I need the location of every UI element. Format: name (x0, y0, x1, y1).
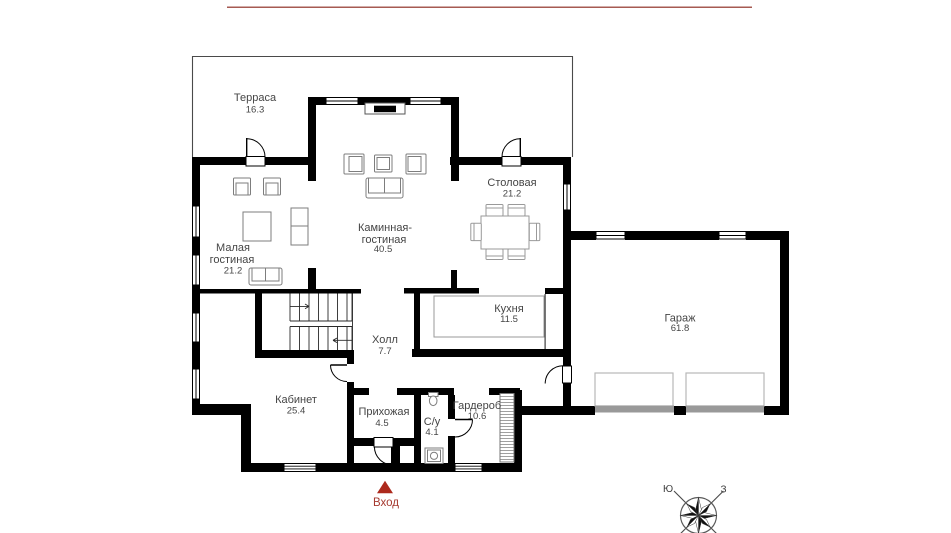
svg-text:21.2: 21.2 (224, 266, 243, 277)
svg-text:Прихожая: Прихожая (359, 406, 410, 418)
svg-text:Каминная-: Каминная- (358, 222, 412, 234)
svg-text:11.5: 11.5 (500, 314, 518, 325)
svg-text:10.6: 10.6 (468, 411, 487, 422)
svg-text:21.2: 21.2 (503, 189, 522, 200)
svg-text:Столовая: Столовая (487, 177, 536, 189)
svg-text:25.4: 25.4 (287, 406, 306, 417)
svg-text:Ю: Ю (663, 484, 673, 495)
svg-text:4.5: 4.5 (375, 418, 388, 429)
svg-text:Терраса: Терраса (234, 92, 277, 104)
svg-text:4.1: 4.1 (425, 427, 438, 438)
svg-text:З: З (720, 485, 726, 496)
svg-text:40.5: 40.5 (374, 244, 393, 255)
svg-text:гостиная: гостиная (210, 254, 255, 266)
svg-text:16.3: 16.3 (246, 105, 265, 116)
svg-text:Холл: Холл (372, 334, 398, 346)
svg-text:Кабинет: Кабинет (275, 394, 317, 406)
svg-text:61.8: 61.8 (671, 323, 690, 334)
svg-text:Вход: Вход (373, 497, 399, 509)
svg-text:7.7: 7.7 (378, 346, 391, 357)
svg-text:Малая: Малая (216, 242, 250, 254)
